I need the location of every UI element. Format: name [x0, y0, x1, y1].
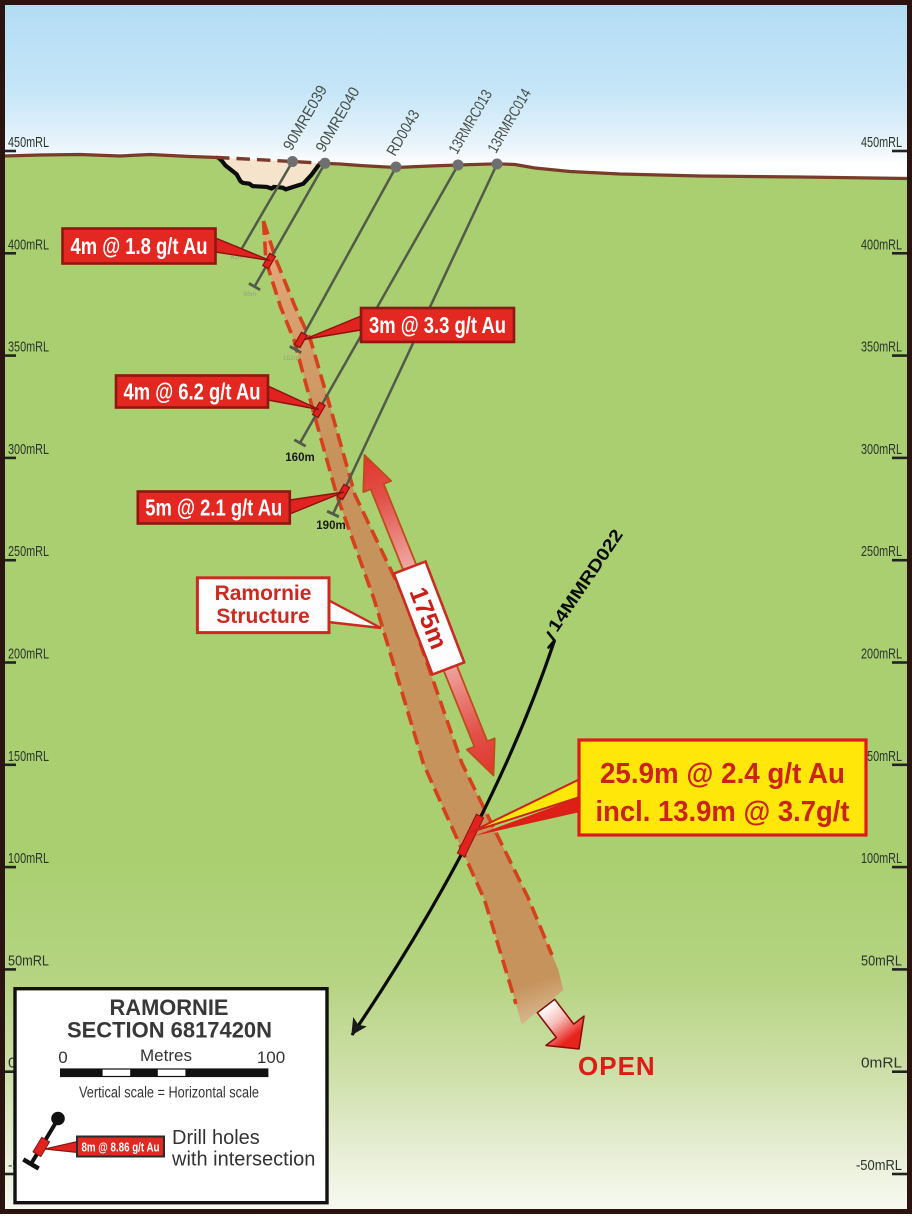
svg-text:incl. 13.9m @ 3.7g/t: incl. 13.9m @ 3.7g/t [596, 796, 850, 828]
svg-text:SECTION 6817420N: SECTION 6817420N [67, 1018, 272, 1043]
svg-text:400mRL: 400mRL [861, 236, 902, 253]
svg-text:450mRL: 450mRL [8, 134, 49, 151]
svg-text:25.9m @ 2.4 g/t Au: 25.9m @ 2.4 g/t Au [600, 758, 845, 790]
svg-text:66m: 66m [244, 291, 257, 298]
svg-text:50mRL: 50mRL [8, 952, 49, 969]
svg-text:Drill holes: Drill holes [172, 1127, 260, 1149]
svg-text:350mRL: 350mRL [8, 339, 49, 356]
svg-text:300mRL: 300mRL [861, 441, 902, 458]
svg-text:OPEN: OPEN [578, 1051, 656, 1081]
svg-text:RAMORNIE: RAMORNIE [110, 995, 229, 1020]
svg-text:100mRL: 100mRL [8, 850, 49, 867]
svg-text:3m @ 3.3 g/t Au: 3m @ 3.3 g/t Au [369, 312, 506, 338]
svg-text:160m: 160m [285, 452, 314, 464]
svg-text:190m: 190m [316, 520, 345, 532]
svg-text:Metres: Metres [140, 1046, 192, 1065]
svg-text:250mRL: 250mRL [8, 543, 49, 560]
svg-text:200mRL: 200mRL [8, 646, 49, 663]
svg-text:152m: 152m [283, 355, 299, 362]
svg-text:150mRL: 150mRL [8, 748, 49, 765]
svg-text:5m @ 2.1 g/t Au: 5m @ 2.1 g/t Au [145, 495, 282, 521]
svg-text:100: 100 [257, 1048, 285, 1067]
svg-text:Ramornie: Ramornie [215, 582, 312, 605]
svg-text:Structure: Structure [216, 605, 309, 628]
svg-text:0mRL: 0mRL [861, 1055, 902, 1072]
svg-text:4m @ 6.2 g/t Au: 4m @ 6.2 g/t Au [124, 379, 261, 405]
svg-text:250mRL: 250mRL [861, 543, 902, 560]
svg-text:with intersection: with intersection [171, 1149, 315, 1171]
svg-text:Vertical scale = Horizontal sc: Vertical scale = Horizontal scale [79, 1085, 259, 1102]
svg-text:400mRL: 400mRL [8, 236, 49, 253]
svg-text:300mRL: 300mRL [8, 441, 49, 458]
svg-text:8m @ 8.86 g/t Au: 8m @ 8.86 g/t Au [82, 1141, 160, 1155]
svg-text:100mRL: 100mRL [861, 850, 902, 867]
svg-text:0: 0 [58, 1048, 67, 1067]
svg-text:-50mRL: -50mRL [856, 1157, 902, 1174]
svg-text:350mRL: 350mRL [861, 339, 902, 356]
svg-text:4m @ 1.8 g/t Au: 4m @ 1.8 g/t Au [71, 233, 208, 259]
svg-text:50mRL: 50mRL [861, 952, 902, 969]
svg-text:450mRL: 450mRL [861, 134, 902, 151]
svg-text:200mRL: 200mRL [861, 646, 902, 663]
